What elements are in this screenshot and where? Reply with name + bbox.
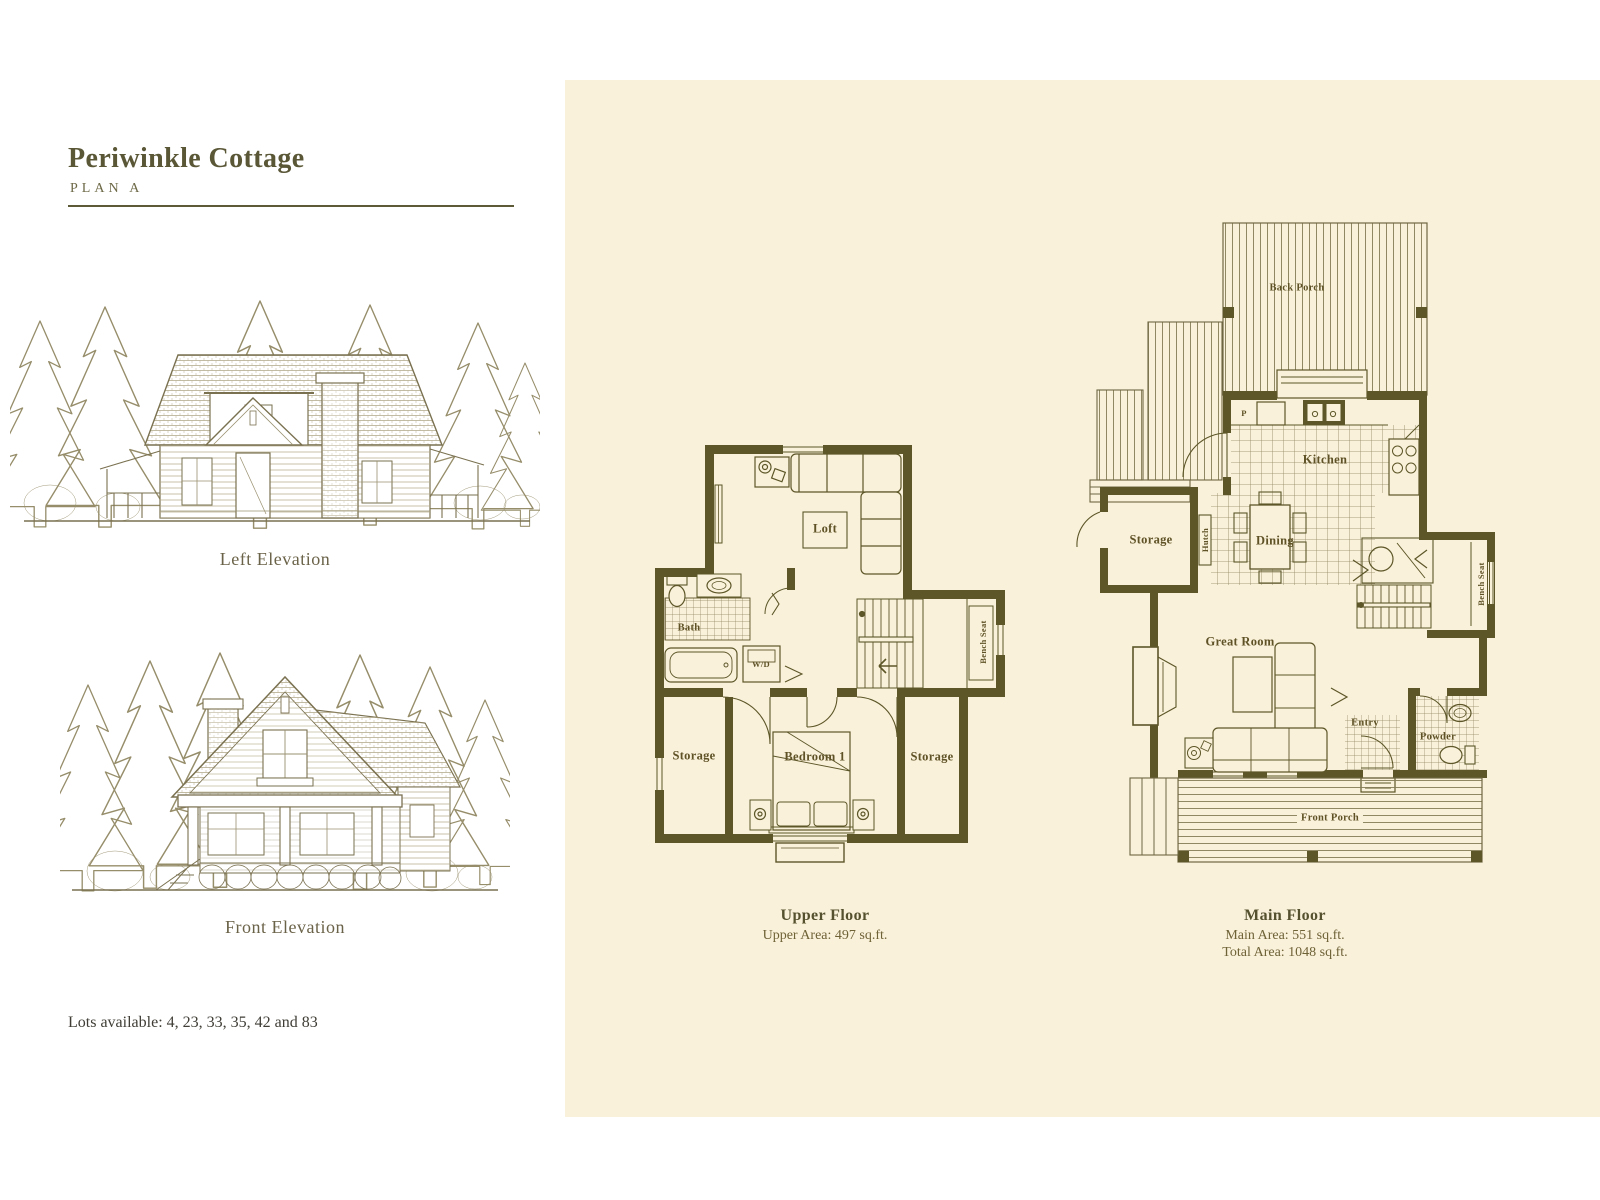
main-floor-title: Main Floor xyxy=(1145,907,1425,925)
upper-floor-plan: Loft Bath W/D Bench Seat Storage Bedroom… xyxy=(645,440,1010,865)
room-label-bedroom-1: Bedroom 1 xyxy=(784,750,845,765)
bedroom-furniture xyxy=(750,732,874,833)
room-label-back-porch: Back Porch xyxy=(1265,283,1328,294)
room-label-bath: Bath xyxy=(678,623,701,634)
back-porch-deck xyxy=(1223,223,1427,395)
window-bay xyxy=(773,834,847,862)
great-room-furniture xyxy=(1133,643,1347,772)
front-elevation-drawing xyxy=(60,645,510,913)
toilet-icon xyxy=(1440,747,1462,764)
page-title: Periwinkle Cottage xyxy=(68,143,305,175)
room-label-bench-seat: Bench Seat xyxy=(978,620,988,663)
bathtub-icon xyxy=(665,648,737,682)
upper-floor-plan-drawing xyxy=(645,440,1010,865)
lots-available-text: Lots available: 4, 23, 33, 35, 42 and 83 xyxy=(68,1014,318,1032)
fireplace-icon xyxy=(1133,647,1158,725)
bifold-door-icon xyxy=(785,666,802,682)
front-elevation-caption: Front Elevation xyxy=(60,917,510,938)
brochure-page: Periwinkle Cottage PLAN A xyxy=(0,0,1600,1200)
toilet-bowl-icon xyxy=(669,586,685,607)
room-label-wd: W/D xyxy=(752,659,770,669)
sofa-icon xyxy=(1213,728,1327,772)
bifold-door-icon xyxy=(1331,688,1347,706)
front-elevation-figure: Front Elevation xyxy=(60,645,510,938)
floor-tile xyxy=(1211,425,1479,770)
pantry-cabinet xyxy=(1257,402,1285,425)
room-label-storage-left: Storage xyxy=(672,749,715,764)
room-label-front-porch: Front Porch xyxy=(1297,813,1363,824)
main-floor-area-main: Main Area: 551 sq.ft. xyxy=(1145,928,1425,944)
loft-furniture xyxy=(715,454,901,574)
room-label-dining: Dining xyxy=(1256,534,1294,549)
main-floor-caption: Main Floor Main Area: 551 sq.ft. Total A… xyxy=(1145,907,1425,961)
back-door-landing xyxy=(1277,370,1367,398)
bath-door-arc xyxy=(765,588,791,614)
upper-floor-caption: Upper Floor Upper Area: 497 sq.ft. xyxy=(700,907,950,944)
coffee-table-icon xyxy=(1233,657,1272,712)
plan-subtitle: PLAN A xyxy=(70,181,143,197)
left-elevation-drawing xyxy=(10,293,540,545)
room-label-kitchen: Kitchen xyxy=(1303,453,1347,468)
nightstand-icon xyxy=(750,800,771,830)
side-deck xyxy=(1090,322,1222,502)
room-label-hutch: Hutch xyxy=(1200,528,1210,552)
title-divider xyxy=(68,205,514,207)
room-label-entry: Entry xyxy=(1351,718,1379,729)
room-label-pantry: P xyxy=(1241,408,1247,418)
room-label-loft: Loft xyxy=(813,522,837,537)
room-label-storage: Storage xyxy=(1129,533,1172,548)
upper-floor-title: Upper Floor xyxy=(700,907,950,925)
room-label-powder: Powder xyxy=(1420,732,1456,743)
toilet-icon xyxy=(667,576,687,585)
room-label-storage-right: Storage xyxy=(910,750,953,765)
bifold-door-icon xyxy=(772,593,779,615)
stairs xyxy=(857,599,923,688)
main-floor-area-total: Total Area: 1048 sq.ft. xyxy=(1145,945,1425,961)
left-elevation-figure: Left Elevation xyxy=(10,293,540,570)
nightstand-icon xyxy=(853,800,874,830)
main-floor-plan: Back Porch P Kitchen Hutch Dining Storag… xyxy=(1075,210,1515,865)
house-left-elevation xyxy=(100,355,484,518)
house-front-elevation xyxy=(156,677,460,890)
room-label-bench-seat: Bench Seat xyxy=(1476,562,1486,605)
room-label-great-room: Great Room xyxy=(1205,635,1274,650)
storage-door-arc xyxy=(1077,512,1100,547)
chaise-icon xyxy=(1275,643,1315,740)
upper-floor-area: Upper Area: 497 sq.ft. xyxy=(700,928,950,944)
left-elevation-caption: Left Elevation xyxy=(10,549,540,570)
